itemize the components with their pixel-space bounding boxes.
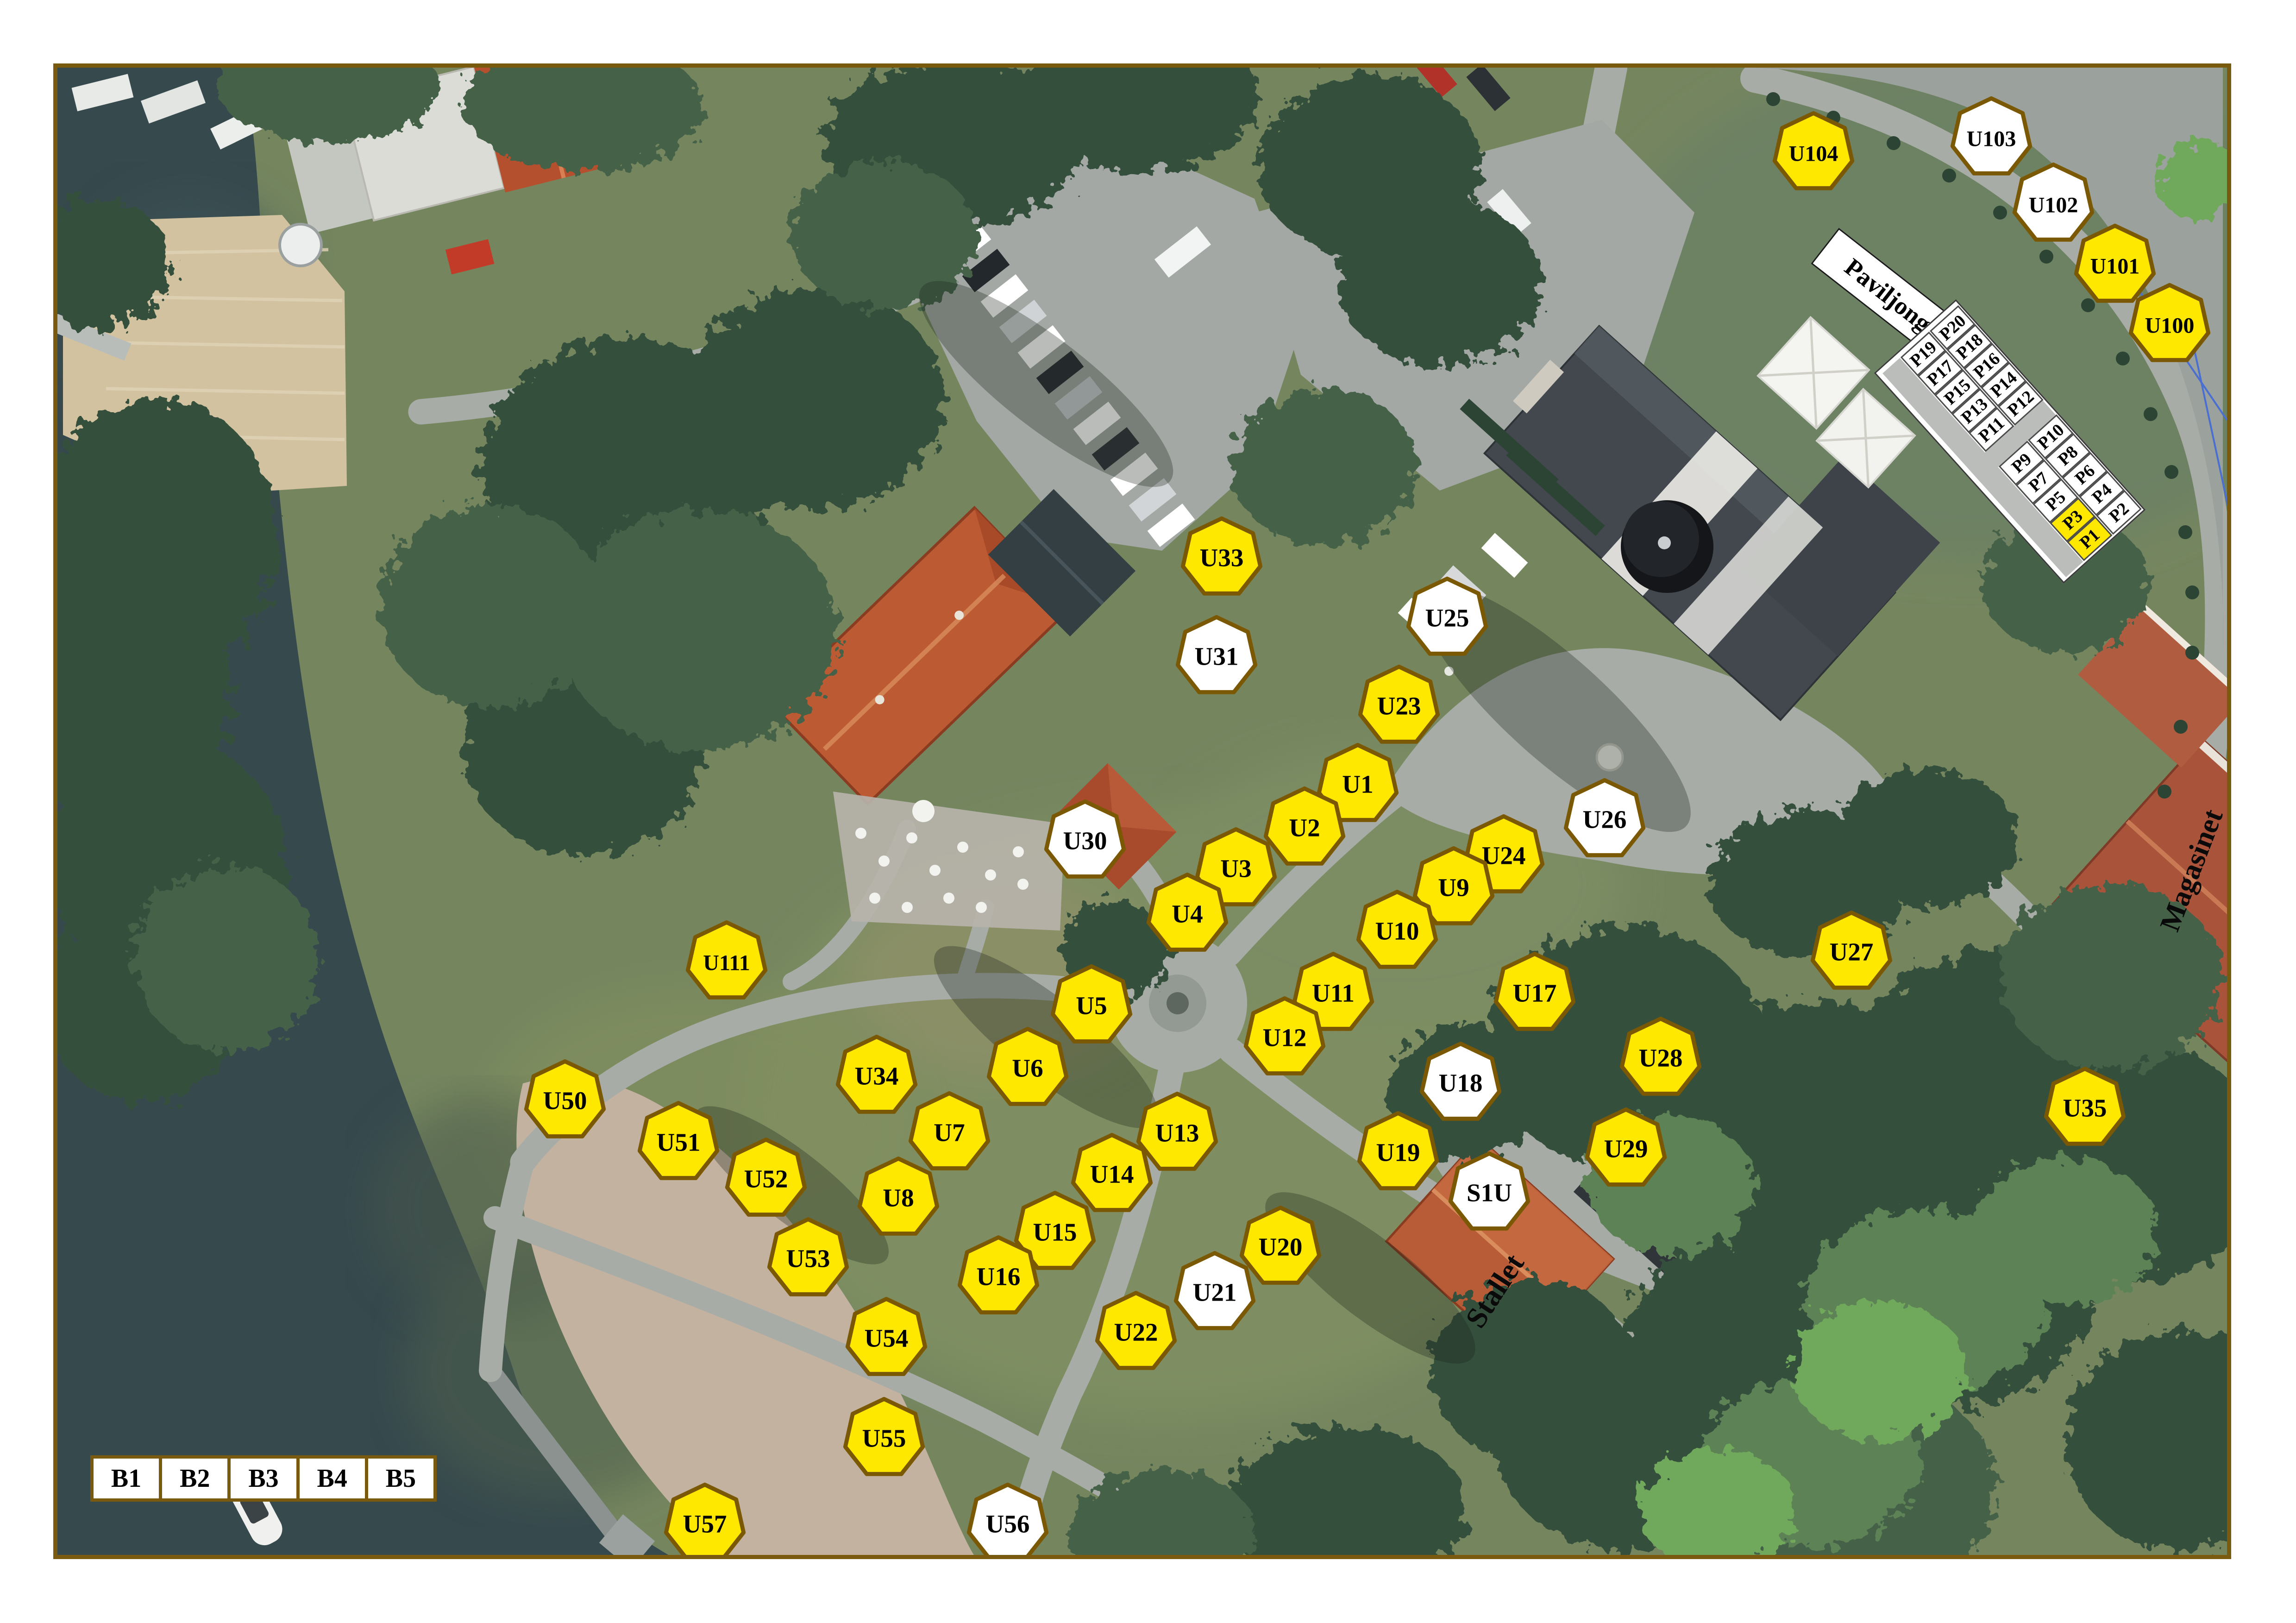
berth-table: B1B2B3B4B5 bbox=[90, 1455, 437, 1502]
marker-U4[interactable]: U4 bbox=[1146, 872, 1229, 955]
berth-cell-B3: B3 bbox=[231, 1459, 296, 1498]
marker-U22[interactable]: U22 bbox=[1095, 1290, 1177, 1373]
marker-U19[interactable]: U19 bbox=[1357, 1111, 1439, 1193]
marker-U6[interactable]: U6 bbox=[986, 1026, 1069, 1109]
marker-label: U53 bbox=[786, 1245, 830, 1273]
marker-label: U2 bbox=[1289, 814, 1320, 842]
marker-label: U16 bbox=[976, 1263, 1020, 1291]
marker-label: U8 bbox=[883, 1184, 914, 1212]
marker-U53[interactable]: U53 bbox=[767, 1217, 849, 1299]
marker-label: U19 bbox=[1376, 1139, 1420, 1167]
marker-label: U14 bbox=[1090, 1160, 1134, 1189]
marker-U31[interactable]: U31 bbox=[1175, 615, 1258, 697]
marker-U57[interactable]: U57 bbox=[664, 1482, 746, 1559]
marker-label: U104 bbox=[1789, 142, 1838, 166]
marker-label: U111 bbox=[703, 951, 750, 975]
marker-U27[interactable]: U27 bbox=[1810, 910, 1893, 993]
marker-U26[interactable]: U26 bbox=[1563, 778, 1646, 860]
site-map: Paviljong P19P17P15P13P11P9P7P5P3P1 P20P… bbox=[53, 63, 2231, 1559]
marker-label: U30 bbox=[1063, 827, 1107, 855]
marker-label: U33 bbox=[1199, 544, 1243, 572]
berth-cell-B4: B4 bbox=[300, 1459, 365, 1498]
marker-label: U26 bbox=[1582, 805, 1626, 834]
marker-label: S1U bbox=[1467, 1179, 1512, 1207]
marker-label: U13 bbox=[1155, 1119, 1199, 1147]
marker-U25[interactable]: U25 bbox=[1406, 576, 1488, 659]
marker-U21[interactable]: U21 bbox=[1173, 1251, 1256, 1333]
marker-label: U5 bbox=[1076, 992, 1107, 1020]
marker-label: U7 bbox=[934, 1119, 965, 1147]
marker-U50[interactable]: U50 bbox=[524, 1059, 606, 1141]
marker-label: U6 bbox=[1012, 1054, 1043, 1082]
mansion-dome bbox=[1621, 500, 1713, 593]
marker-label: U12 bbox=[1262, 1024, 1306, 1052]
marker-label: U52 bbox=[744, 1165, 788, 1193]
marker-label: U100 bbox=[2145, 314, 2195, 338]
marker-label: U18 bbox=[1438, 1069, 1482, 1097]
marker-label: U51 bbox=[656, 1128, 700, 1157]
page: Paviljong P19P17P15P13P11P9P7P5P3P1 P20P… bbox=[0, 0, 2296, 1623]
marker-label: U56 bbox=[985, 1510, 1029, 1538]
marker-U51[interactable]: U51 bbox=[637, 1101, 720, 1183]
marker-U8[interactable]: U8 bbox=[857, 1156, 940, 1239]
marker-label: U103 bbox=[1967, 127, 2016, 151]
marker-label: U9 bbox=[1438, 874, 1469, 902]
marker-label: U22 bbox=[1114, 1318, 1158, 1346]
marker-U54[interactable]: U54 bbox=[845, 1296, 928, 1379]
marker-label: U35 bbox=[2063, 1094, 2107, 1122]
marker-label: U20 bbox=[1258, 1233, 1302, 1261]
marker-U35[interactable]: U35 bbox=[2044, 1066, 2126, 1149]
marker-U28[interactable]: U28 bbox=[1619, 1016, 1702, 1099]
marker-U34[interactable]: U34 bbox=[835, 1034, 918, 1117]
marker-U56[interactable]: U56 bbox=[966, 1482, 1049, 1559]
marker-S1U[interactable]: S1U bbox=[1448, 1151, 1531, 1233]
marker-U30[interactable]: U30 bbox=[1044, 799, 1126, 881]
marker-label: U1 bbox=[1342, 770, 1373, 799]
marker-label: U54 bbox=[864, 1324, 908, 1352]
marker-U29[interactable]: U29 bbox=[1585, 1107, 1667, 1189]
marker-label: U31 bbox=[1194, 642, 1238, 671]
marker-label: U102 bbox=[2029, 193, 2078, 218]
marker-label: U4 bbox=[1172, 900, 1203, 928]
marker-label: U25 bbox=[1425, 604, 1469, 632]
marker-label: U55 bbox=[862, 1424, 906, 1453]
marker-label: U27 bbox=[1829, 938, 1873, 966]
marker-label: U101 bbox=[2090, 254, 2140, 279]
tank bbox=[280, 224, 321, 266]
marker-label: U10 bbox=[1375, 917, 1419, 945]
marker-U100[interactable]: U100 bbox=[2128, 283, 2211, 365]
marker-U104[interactable]: U104 bbox=[1772, 111, 1855, 193]
marker-U16[interactable]: U16 bbox=[957, 1235, 1040, 1317]
marker-U12[interactable]: U12 bbox=[1243, 996, 1326, 1078]
marker-label: U17 bbox=[1512, 979, 1556, 1007]
marker-label: U57 bbox=[683, 1510, 727, 1538]
berth-cell-B2: B2 bbox=[162, 1459, 227, 1498]
marker-label: U23 bbox=[1377, 692, 1421, 720]
marker-label: U28 bbox=[1638, 1044, 1682, 1072]
marker-U52[interactable]: U52 bbox=[725, 1137, 807, 1220]
marker-label: U21 bbox=[1192, 1278, 1236, 1307]
marker-label: U50 bbox=[543, 1087, 587, 1115]
marker-U111[interactable]: U111 bbox=[685, 920, 768, 1002]
marker-label: U29 bbox=[1604, 1135, 1648, 1163]
marker-U55[interactable]: U55 bbox=[843, 1397, 925, 1479]
marker-label: U34 bbox=[854, 1062, 898, 1090]
marker-U17[interactable]: U17 bbox=[1493, 951, 1576, 1034]
berth-cell-B5: B5 bbox=[368, 1459, 433, 1498]
marker-U23[interactable]: U23 bbox=[1358, 664, 1440, 747]
marker-U33[interactable]: U33 bbox=[1180, 516, 1263, 598]
berth-cell-B1: B1 bbox=[94, 1459, 159, 1498]
